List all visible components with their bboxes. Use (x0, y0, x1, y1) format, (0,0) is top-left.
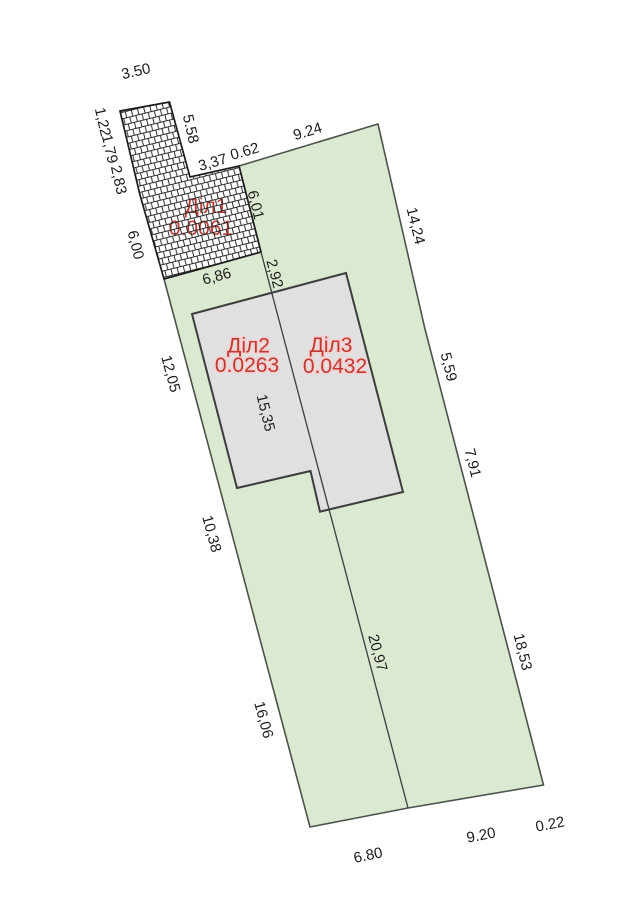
svg-text:3.50: 3.50 (120, 60, 152, 83)
svg-text:0.0263: 0.0263 (215, 354, 279, 377)
svg-text:Діл3: Діл3 (310, 334, 353, 357)
svg-text:0.0432: 0.0432 (303, 355, 367, 378)
svg-text:5,59: 5,59 (437, 351, 461, 383)
svg-text:7,91: 7,91 (461, 447, 485, 479)
svg-text:16,06: 16,06 (250, 700, 276, 741)
svg-text:10,38: 10,38 (198, 514, 224, 555)
svg-text:2,83: 2,83 (107, 164, 130, 196)
svg-text:9.24: 9.24 (291, 119, 324, 144)
svg-text:1,79: 1,79 (98, 133, 121, 165)
svg-text:12,05: 12,05 (157, 354, 183, 395)
svg-text:0.22: 0.22 (534, 813, 566, 835)
svg-text:9.20: 9.20 (465, 824, 497, 846)
svg-text:5.58: 5.58 (179, 113, 202, 145)
svg-text:6.80: 6.80 (352, 844, 384, 867)
svg-text:6,00: 6,00 (124, 229, 148, 261)
svg-text:14,24: 14,24 (403, 206, 429, 247)
